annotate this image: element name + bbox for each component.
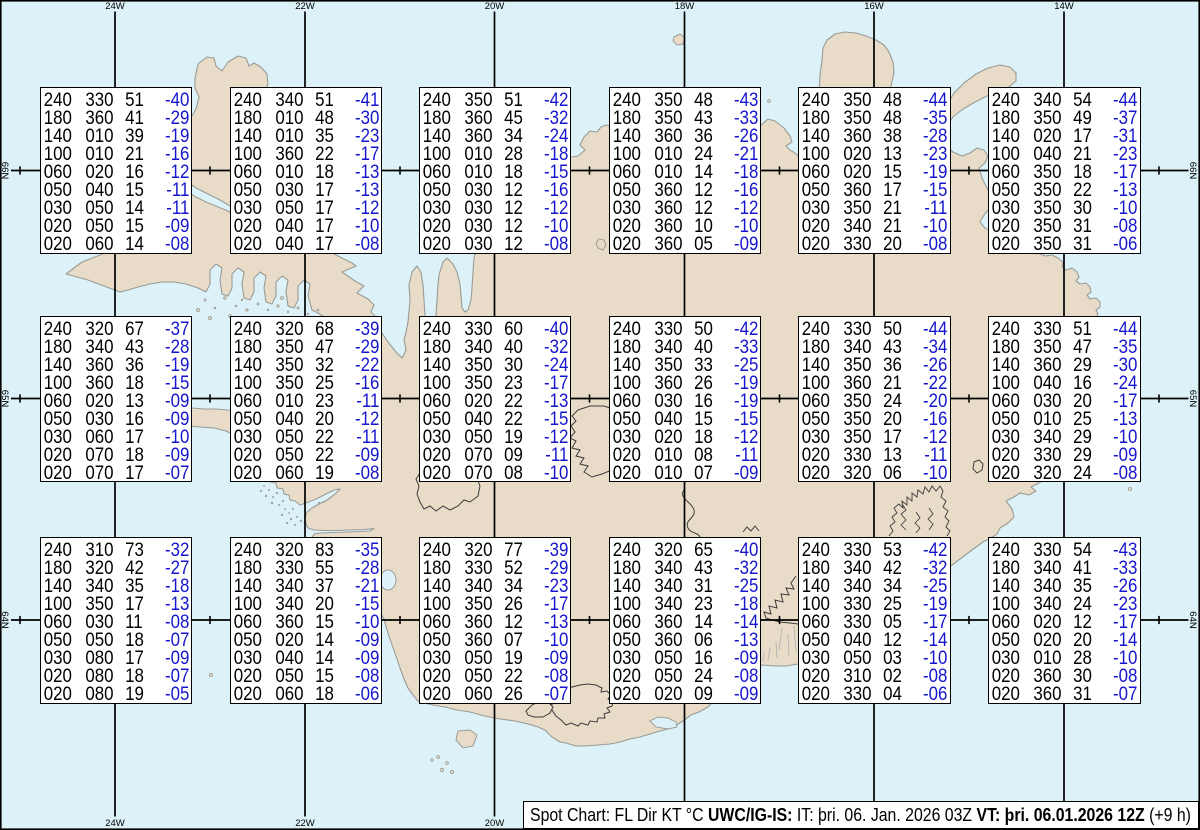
svg-text:65N: 65N <box>1187 390 1198 408</box>
svg-text:16W: 16W <box>864 1 884 12</box>
svg-text:22W: 22W <box>295 1 315 12</box>
svg-text:20W: 20W <box>485 1 505 12</box>
svg-text:22W: 22W <box>295 818 315 829</box>
svg-text:65N: 65N <box>0 390 10 408</box>
svg-text:24W: 24W <box>105 1 125 12</box>
svg-text:24W: 24W <box>105 818 125 829</box>
svg-text:66N: 66N <box>0 162 10 180</box>
svg-text:66N: 66N <box>1187 162 1198 180</box>
svg-text:18W: 18W <box>675 1 695 12</box>
svg-text:20W: 20W <box>485 818 505 829</box>
svg-text:14W: 14W <box>1054 1 1074 12</box>
svg-text:64N: 64N <box>1187 611 1198 629</box>
svg-text:64N: 64N <box>0 611 10 629</box>
